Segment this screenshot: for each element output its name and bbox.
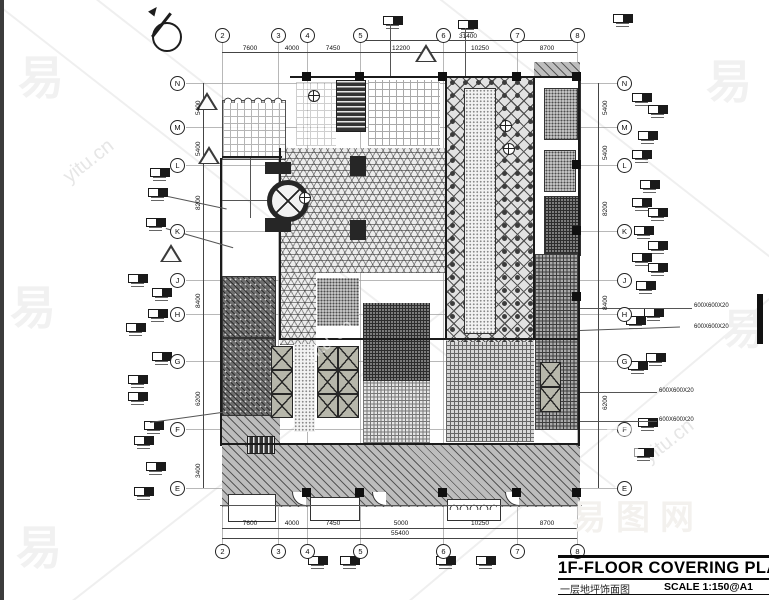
target-symbol-icon bbox=[500, 120, 512, 132]
dimension-label: 5400 bbox=[602, 146, 609, 160]
plan-area-lobby-mosaic bbox=[280, 273, 316, 345]
grid-bubble: L bbox=[617, 158, 632, 173]
dimension-label: 7450 bbox=[326, 520, 340, 527]
dimension-label: 31400 bbox=[459, 33, 477, 40]
dimension-label: 10250 bbox=[471, 520, 489, 527]
drawing-title: 1F-FLOOR COVERING PLAN bbox=[558, 558, 769, 578]
spec-annotation: 600X600X20 bbox=[659, 388, 694, 394]
elevation-marker-icon bbox=[160, 244, 182, 262]
finish-tag bbox=[632, 93, 652, 102]
floor-plan-drawing: 易 易 易 易 易 yitu.cn yitu.cn bbox=[0, 0, 769, 600]
elevator-cell bbox=[317, 370, 338, 394]
spec-annotation: 600X600X20 bbox=[694, 324, 729, 330]
finish-tag bbox=[128, 375, 148, 384]
grid-bubble: 2 bbox=[215, 544, 230, 559]
finish-tag bbox=[152, 352, 172, 361]
finish-tag bbox=[134, 436, 154, 445]
dimension-label: 7450 bbox=[326, 45, 340, 52]
grid-bubble: 7 bbox=[510, 544, 525, 559]
plan-area-dark-room bbox=[544, 196, 580, 254]
dimension-label: 4000 bbox=[285, 45, 299, 52]
grid-bubble: 2 bbox=[215, 28, 230, 43]
grid-bubble: H bbox=[170, 307, 185, 322]
dimension-label: 8200 bbox=[602, 202, 609, 216]
watermark-glyph: 易 bbox=[10, 272, 56, 338]
finish-tag bbox=[636, 281, 656, 290]
wall bbox=[290, 76, 580, 78]
column-marker bbox=[512, 488, 521, 497]
finish-tag bbox=[644, 308, 664, 317]
grid-bubble: J bbox=[617, 273, 632, 288]
finish-tag bbox=[146, 218, 166, 227]
dimension-label: 3400 bbox=[195, 464, 202, 478]
finish-tag bbox=[126, 323, 146, 332]
finish-tag bbox=[613, 14, 633, 23]
elevator-cell bbox=[271, 370, 293, 394]
elevator-cell bbox=[317, 394, 338, 418]
column-marker bbox=[572, 292, 581, 301]
page-edge-strip bbox=[0, 0, 4, 600]
grid-bubble: N bbox=[170, 76, 185, 91]
dimension-line bbox=[203, 83, 204, 488]
target-symbol-icon bbox=[299, 192, 311, 204]
elevator-cell bbox=[271, 346, 293, 370]
dimension-line bbox=[222, 538, 577, 539]
column-marker bbox=[302, 72, 311, 81]
dimension-label: 8700 bbox=[540, 520, 554, 527]
north-arrow-icon bbox=[152, 22, 182, 52]
plan-area-boh bbox=[446, 342, 534, 442]
column-marker bbox=[572, 160, 581, 169]
grid-bubble: N bbox=[617, 76, 632, 91]
elevator-cell bbox=[338, 370, 359, 394]
spec-annotation: 600X600X20 bbox=[694, 303, 729, 309]
finish-tag bbox=[134, 487, 154, 496]
wall bbox=[578, 76, 580, 446]
grid-bubble: 5 bbox=[353, 544, 368, 559]
dimension-label: 7600 bbox=[243, 520, 257, 527]
dimension-label: 8400 bbox=[195, 294, 202, 308]
grid-bubble: L bbox=[170, 158, 185, 173]
dimension-label: 12200 bbox=[392, 45, 410, 52]
dimension-label: 55400 bbox=[391, 530, 409, 537]
leader-line bbox=[580, 392, 657, 393]
dimension-label: 4000 bbox=[285, 520, 299, 527]
finish-tag bbox=[152, 288, 172, 297]
elevator-bank bbox=[271, 346, 293, 418]
dimension-label: 7600 bbox=[243, 45, 257, 52]
finish-tag bbox=[632, 150, 652, 159]
watermark-glyph: 易 bbox=[706, 46, 752, 112]
finish-tag bbox=[146, 462, 166, 471]
plan-area-tile-floor bbox=[368, 80, 440, 146]
wall bbox=[279, 148, 281, 340]
target-symbol-icon bbox=[503, 143, 515, 155]
finish-tag bbox=[148, 309, 168, 318]
elevator-cell bbox=[338, 394, 359, 418]
dimension-line bbox=[222, 52, 577, 53]
column-marker bbox=[350, 156, 366, 176]
dimension-label: 5400 bbox=[195, 142, 202, 156]
stair bbox=[247, 436, 275, 454]
elevator-cell bbox=[540, 387, 561, 412]
wall bbox=[220, 158, 222, 446]
finish-tag bbox=[648, 105, 668, 114]
finish-tag bbox=[646, 353, 666, 362]
finish-tag bbox=[648, 241, 668, 250]
grid-bubble: H bbox=[617, 307, 632, 322]
dimension-line bbox=[222, 528, 577, 529]
dimension-label: 6200 bbox=[195, 392, 202, 406]
finish-tag bbox=[150, 168, 170, 177]
wall bbox=[222, 156, 282, 158]
wall bbox=[220, 443, 580, 445]
grid-bubble: K bbox=[617, 224, 632, 239]
service-elevator bbox=[540, 362, 561, 412]
elevation-marker-icon bbox=[415, 44, 437, 62]
dimension-label: 10250 bbox=[471, 45, 489, 52]
dimension-label: 6200 bbox=[602, 396, 609, 410]
elevator-cell bbox=[338, 346, 359, 370]
dimension-line bbox=[598, 83, 599, 488]
north-arrow-head bbox=[148, 4, 160, 16]
door-pad bbox=[265, 162, 291, 174]
dimension-label: 8400 bbox=[602, 296, 609, 310]
spec-annotation: 600X600X20 bbox=[659, 417, 694, 423]
porch bbox=[228, 494, 276, 522]
plan-area-carpet bbox=[222, 338, 276, 416]
grid-bubble: 4 bbox=[300, 544, 315, 559]
plan-area-planter bbox=[544, 150, 576, 192]
column-marker bbox=[512, 72, 521, 81]
finish-tag bbox=[458, 20, 478, 29]
finish-tag bbox=[634, 226, 654, 235]
column-marker bbox=[355, 488, 364, 497]
finish-tag bbox=[148, 188, 168, 197]
grid-bubble: 6 bbox=[436, 544, 451, 559]
dimension-label: 8700 bbox=[540, 45, 554, 52]
column-marker bbox=[302, 488, 311, 497]
leader-line bbox=[580, 308, 692, 309]
column-marker bbox=[438, 72, 447, 81]
finish-tag bbox=[476, 556, 496, 565]
drawing-scale: SCALE 1:150@A1 bbox=[664, 581, 753, 593]
grid-bubble: J bbox=[170, 273, 185, 288]
elevator-cell bbox=[271, 394, 293, 418]
watermark-glyph: 易 bbox=[600, 412, 642, 473]
finish-tag bbox=[128, 392, 148, 401]
grid-bubble: 5 bbox=[353, 28, 368, 43]
column-marker bbox=[350, 220, 366, 240]
grid-bubble: 7 bbox=[510, 28, 525, 43]
plan-area-boh bbox=[363, 303, 430, 381]
plan-area-boh bbox=[363, 381, 430, 443]
porch bbox=[310, 497, 360, 521]
dimension-label: 5400 bbox=[195, 101, 202, 115]
finish-tag bbox=[648, 208, 668, 217]
title-rule bbox=[558, 594, 769, 595]
finish-tag bbox=[640, 180, 660, 189]
watermark-site: yitu.cn bbox=[59, 135, 119, 189]
column-marker bbox=[572, 72, 581, 81]
wall bbox=[445, 76, 447, 340]
watermark-glyph: 易 bbox=[18, 42, 64, 108]
grid-bubble: K bbox=[170, 224, 185, 239]
grid-bubble: 4 bbox=[300, 28, 315, 43]
column-marker bbox=[355, 72, 364, 81]
door-pad bbox=[265, 218, 291, 232]
grid-bubble: 8 bbox=[570, 28, 585, 43]
wall bbox=[533, 76, 535, 340]
plan-area-entry-rooms bbox=[222, 100, 286, 160]
finish-tag bbox=[632, 198, 652, 207]
finish-tag bbox=[638, 131, 658, 140]
stair bbox=[336, 80, 366, 132]
grid-bubble: 3 bbox=[271, 544, 286, 559]
title-rule bbox=[558, 578, 769, 580]
finish-tag bbox=[632, 253, 652, 262]
finish-tag bbox=[648, 263, 668, 272]
watermark-brand: 易图网 bbox=[572, 490, 704, 539]
grid-bubble: F bbox=[170, 422, 185, 437]
elevator-cell bbox=[540, 362, 561, 387]
grid-bubble: M bbox=[617, 120, 632, 135]
column-marker bbox=[572, 226, 581, 235]
watermark-glyph: 易 bbox=[16, 512, 62, 578]
grid-bubble: M bbox=[170, 120, 185, 135]
leader-line bbox=[150, 412, 223, 423]
leader-line bbox=[390, 24, 391, 76]
finish-tag bbox=[383, 16, 403, 25]
grid-bubble: G bbox=[170, 354, 185, 369]
wall bbox=[250, 158, 251, 218]
page-edge-mark bbox=[757, 294, 763, 344]
dimension-label: 8200 bbox=[195, 196, 202, 210]
canopy-scallop bbox=[223, 94, 283, 103]
grid-bubble: G bbox=[617, 354, 632, 369]
grid-bubble: 3 bbox=[271, 28, 286, 43]
target-symbol-icon bbox=[308, 90, 320, 102]
wall bbox=[220, 505, 582, 506]
plan-area-planter bbox=[544, 88, 578, 140]
column-marker bbox=[438, 488, 447, 497]
dimension-label: 5400 bbox=[602, 101, 609, 115]
grid-bubble: E bbox=[170, 481, 185, 496]
dimension-label: 5000 bbox=[394, 520, 408, 527]
plan-area-stone-runner bbox=[464, 88, 496, 334]
plan-area-carpet bbox=[222, 276, 276, 338]
finish-tag bbox=[128, 274, 148, 283]
grid-bubble: 6 bbox=[436, 28, 451, 43]
dimension-line bbox=[360, 40, 577, 41]
